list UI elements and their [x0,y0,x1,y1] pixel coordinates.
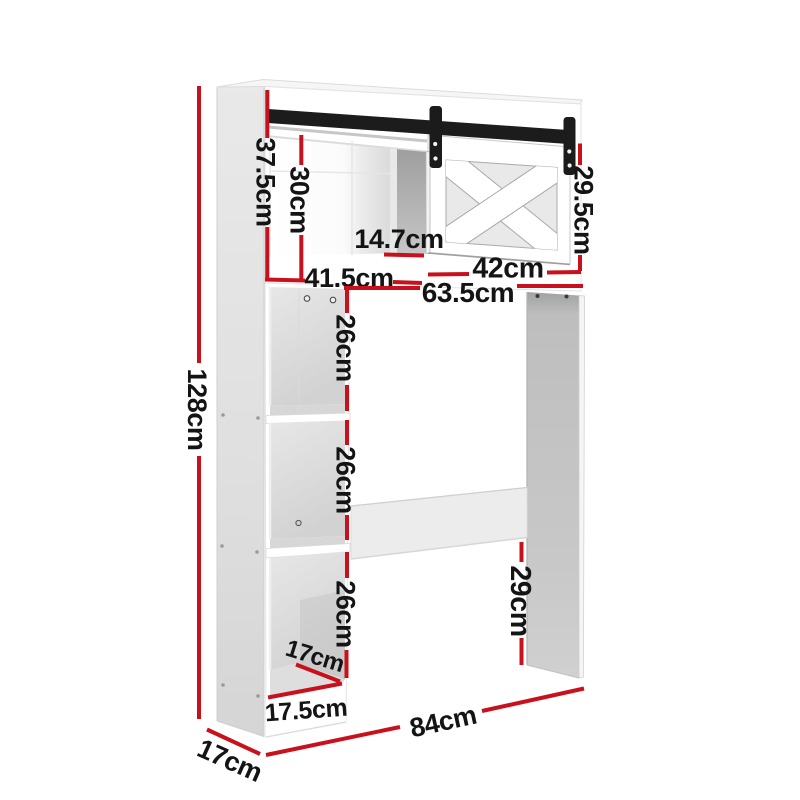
svg-text:29cm: 29cm [504,565,536,636]
svg-text:26cm: 26cm [331,314,361,381]
svg-text:128cm: 128cm [182,368,212,450]
svg-text:63.5cm: 63.5cm [422,277,515,308]
svg-text:26cm: 26cm [331,446,361,513]
svg-text:26cm: 26cm [331,580,361,647]
svg-text:14.7cm: 14.7cm [354,224,443,254]
svg-text:30cm: 30cm [285,166,315,233]
svg-text:17.5cm: 17.5cm [264,694,348,728]
svg-text:37.5cm: 37.5cm [251,137,281,226]
svg-text:29.5cm: 29.5cm [569,165,599,254]
